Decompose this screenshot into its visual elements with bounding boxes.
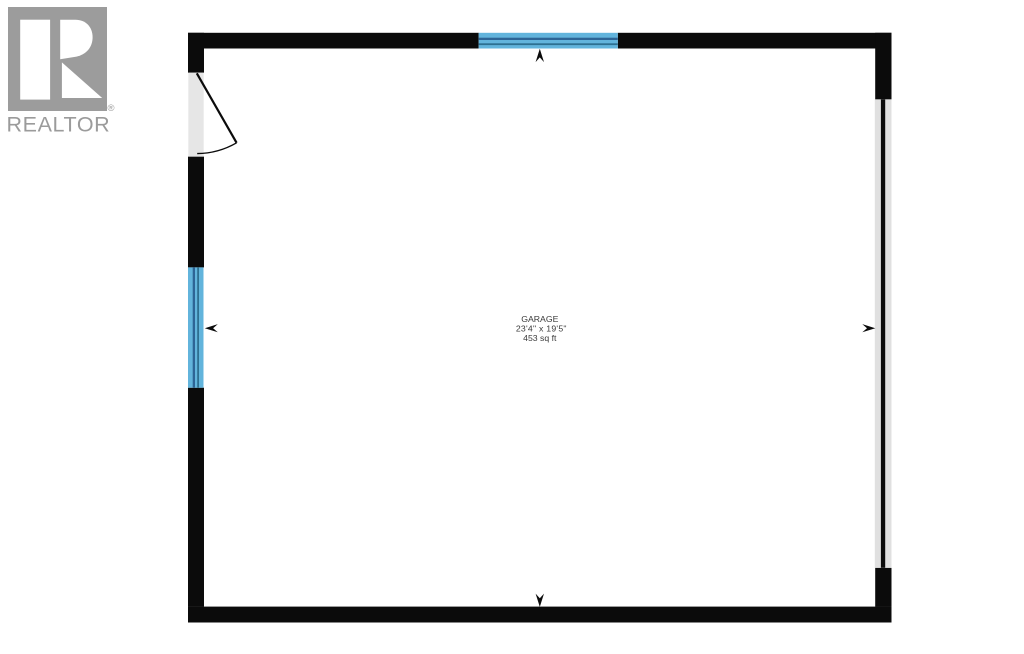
svg-text:®: ® (108, 103, 115, 114)
svg-text:453 sq ft: 453 sq ft (523, 333, 557, 343)
svg-text:REALTOR: REALTOR (7, 113, 111, 137)
